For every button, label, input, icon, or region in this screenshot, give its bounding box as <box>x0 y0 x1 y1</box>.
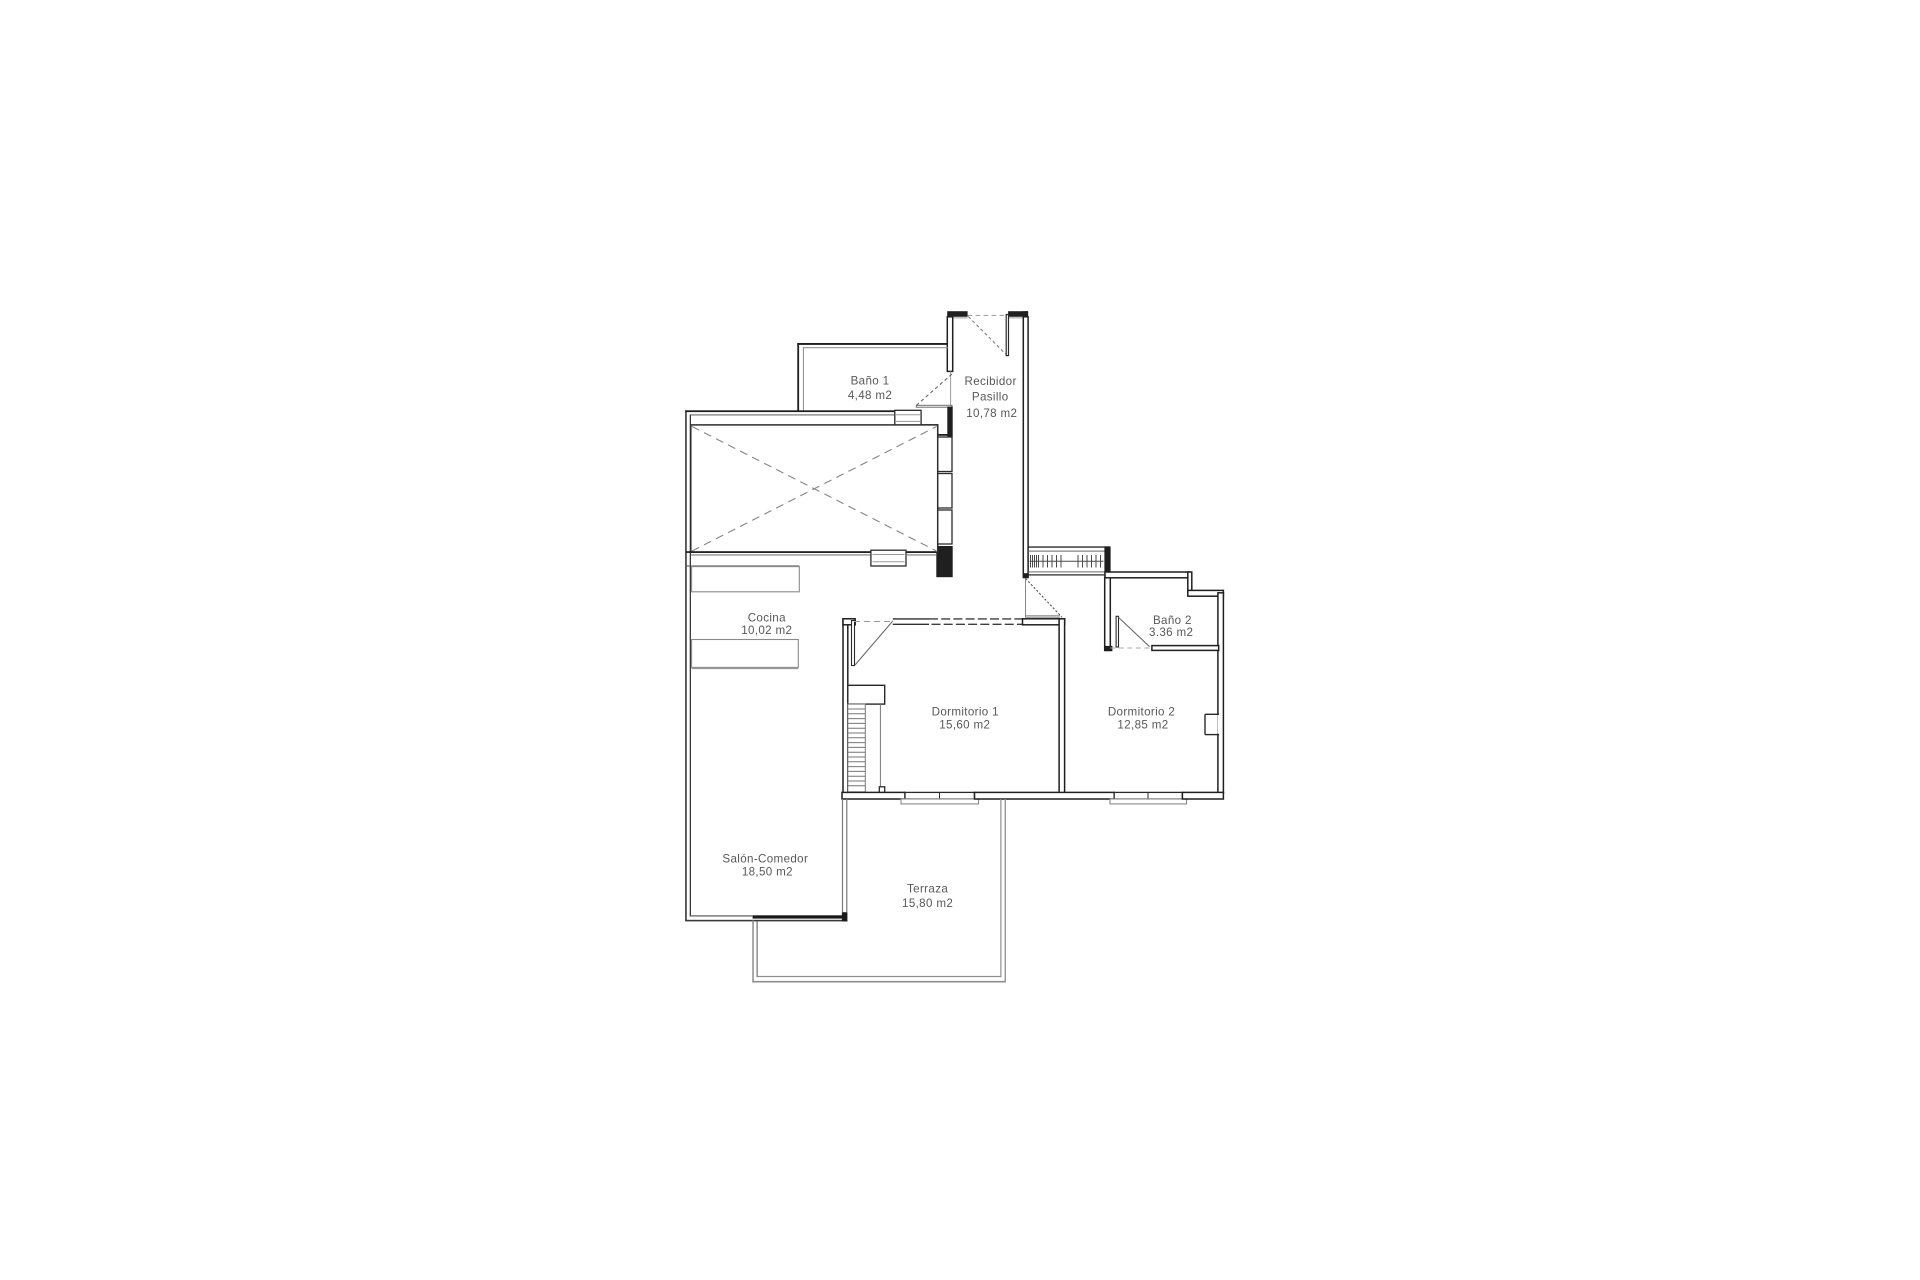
svg-text:Terraza: Terraza <box>907 882 948 895</box>
svg-text:Cocina: Cocina <box>748 611 786 624</box>
svg-text:15,80 m2: 15,80 m2 <box>902 897 953 910</box>
svg-text:3.36 m2: 3.36 m2 <box>1149 626 1193 639</box>
svg-text:15,60 m2: 15,60 m2 <box>939 718 990 731</box>
svg-text:Recibidor: Recibidor <box>965 375 1017 388</box>
svg-text:Baño 2: Baño 2 <box>1153 614 1192 627</box>
svg-text:Pasillo: Pasillo <box>972 390 1009 403</box>
svg-text:10,02 m2: 10,02 m2 <box>741 624 792 637</box>
svg-text:Dormitorio 2: Dormitorio 2 <box>1108 705 1175 718</box>
svg-text:Dormitorio 1: Dormitorio 1 <box>932 706 999 719</box>
svg-text:Baño 1: Baño 1 <box>851 375 890 388</box>
svg-text:12,85 m2: 12,85 m2 <box>1117 719 1168 732</box>
svg-text:10,78 m2: 10,78 m2 <box>966 407 1017 420</box>
svg-text:4,48 m2: 4,48 m2 <box>848 389 892 402</box>
svg-text:Salón-Comedor: Salón-Comedor <box>722 853 808 866</box>
svg-text:18,50 m2: 18,50 m2 <box>742 865 793 878</box>
